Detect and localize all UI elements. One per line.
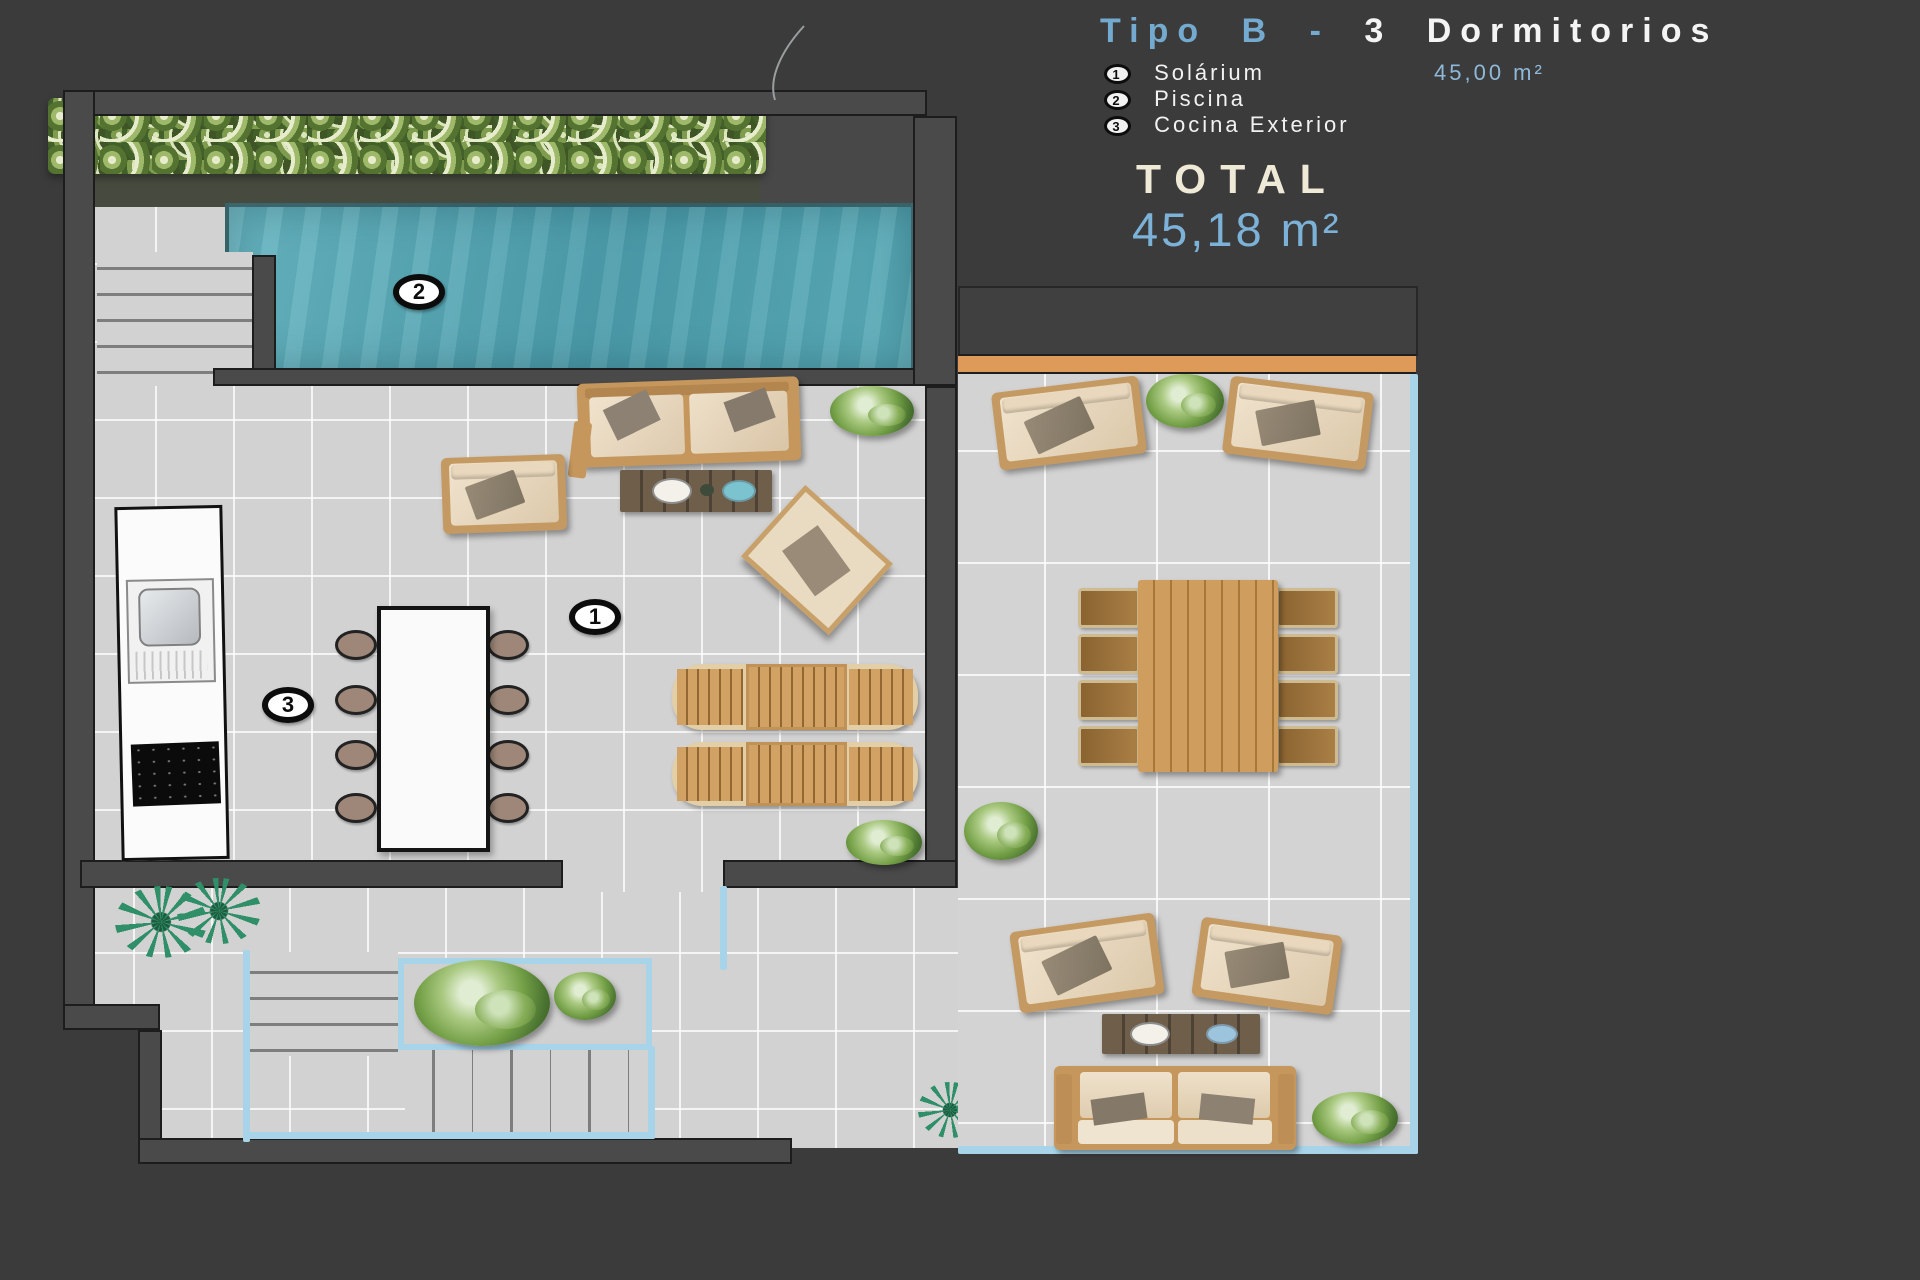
legend-item-cocina: 3 Cocina Exterior: [1104, 112, 1350, 138]
bowl-teal-icon: [722, 480, 756, 502]
wall-bottom-right-segment: [723, 860, 957, 888]
bowl-blue-icon: [1206, 1024, 1238, 1044]
wall-pool-bottom: [213, 368, 927, 386]
wall-right-lower: [925, 386, 957, 888]
dining-chair: [487, 740, 529, 770]
bowl-dark-icon: [700, 484, 714, 496]
palm-leaves: [177, 878, 261, 944]
stair-opening-floor: [563, 858, 723, 892]
bush: [846, 820, 922, 865]
stair-outline-left: [243, 950, 250, 1142]
sketch-artifact: [740, 22, 820, 106]
lounger-slats: [849, 669, 913, 725]
sun-lounger: [672, 742, 918, 806]
wall-jog: [63, 1004, 160, 1030]
plan-badge-solarium: 1: [569, 599, 621, 635]
stair-planter: [398, 958, 652, 1050]
total-label: TOTAL: [1136, 156, 1339, 203]
legend-badge-2: 2: [1104, 90, 1131, 110]
terrace-chair: [1078, 680, 1140, 720]
cooktop-speckles: [131, 741, 221, 806]
lounger-slats: [677, 669, 743, 725]
stairs-top-left: [97, 252, 253, 386]
bowl-white-icon: [1130, 1022, 1170, 1046]
lounger-slats: [746, 742, 847, 806]
stairs-lower-run1: [250, 952, 398, 1056]
planter-bush-large: [414, 960, 550, 1046]
coffee-table: [620, 470, 772, 512]
plan-badge-piscina: 2: [393, 274, 445, 310]
bush: [964, 802, 1038, 860]
terrace-chair: [1276, 588, 1338, 628]
terrace-chair: [1078, 588, 1140, 628]
terrace-dining-table: [1138, 580, 1278, 772]
terrace-chair: [1078, 726, 1140, 766]
terrace-chair: [1276, 634, 1338, 674]
terrace-header-block: [958, 286, 1418, 356]
dining-chair: [335, 630, 377, 660]
wall-bottom-outer: [138, 1138, 792, 1164]
bush: [1146, 374, 1224, 428]
dining-chair: [487, 685, 529, 715]
sofa-seat-cushion: [1078, 1120, 1174, 1144]
legend-badge-1: 1: [1104, 64, 1131, 84]
legend-label: Solárium: [1154, 60, 1265, 85]
sun-lounger: [672, 664, 918, 730]
page-title: Tipo B - 3 Dormitorios: [1100, 12, 1718, 51]
dining-chair: [487, 793, 529, 823]
sofa-arm: [1278, 1074, 1294, 1144]
sink-unit: [126, 578, 216, 684]
badge-number: 2: [413, 279, 425, 305]
total-value: 45,18 m²: [1132, 202, 1341, 257]
dining-chair: [335, 740, 377, 770]
stair-outline-right: [648, 1046, 655, 1139]
terrace-outline-right: [1410, 374, 1418, 1154]
pool: [225, 203, 915, 373]
sofa-top: [577, 376, 802, 468]
dining-chair: [335, 685, 377, 715]
stair-outline-opening: [720, 886, 727, 970]
terrace-chair: [1276, 726, 1338, 766]
legend-label: Piscina: [1154, 86, 1246, 111]
legend-badge-3: 3: [1104, 116, 1131, 136]
terrace-deck-strip: [958, 354, 1416, 374]
legend-label: Cocina Exterior: [1154, 112, 1349, 137]
badge-number: 3: [282, 692, 294, 718]
legend-item-piscina: 2 Piscina: [1104, 86, 1350, 112]
dining-chair: [335, 793, 377, 823]
sofa-seat-cushion: [1178, 1120, 1272, 1144]
wall-right-upper: [913, 116, 957, 386]
legend-value: 45,00 m²: [1434, 60, 1545, 86]
legend: 1 Solárium 45,00 m² 2 Piscina 3 Cocina E…: [1104, 60, 1350, 138]
sink-drainboard: [135, 650, 208, 680]
badge-number: 1: [589, 604, 601, 630]
plan-badge-cocina: 3: [262, 687, 314, 723]
pool-side-wall: [760, 115, 927, 207]
coffee-table: [1102, 1014, 1260, 1054]
sofa-arm: [1056, 1074, 1072, 1144]
terrace-sofa: [1054, 1066, 1296, 1150]
dining-table: [377, 606, 490, 852]
palm-plant: [115, 878, 265, 966]
lounger-slats: [746, 664, 847, 730]
daybed-pillow: [782, 525, 851, 596]
stairs-lower-run2: [405, 1050, 648, 1134]
cooktop: [131, 741, 221, 806]
planter-bush-small: [554, 972, 616, 1020]
lounger-slats: [677, 747, 743, 801]
legend-item-solarium: 1 Solárium 45,00 m²: [1104, 60, 1350, 86]
bush: [1312, 1092, 1398, 1144]
bowl-white-icon: [652, 478, 692, 504]
dining-chair: [487, 630, 529, 660]
kitchen-counter: [114, 505, 229, 861]
terrace-chair: [1276, 680, 1338, 720]
bush: [830, 386, 914, 436]
title-type: Tipo B -: [1100, 12, 1330, 50]
sofa-pillow: [1199, 1093, 1255, 1125]
sink-bowl-icon: [138, 587, 201, 646]
armchair: [441, 454, 568, 534]
terrace-chair: [1078, 634, 1140, 674]
floorplan-canvas: 2 1 3 Tipo B - 3 Dormitorios 1 Solárium …: [0, 0, 1920, 1280]
background-notch: [58, 1028, 140, 1183]
title-bedrooms: 3 Dormitorios: [1364, 12, 1718, 50]
stair-outline-bottom: [243, 1132, 655, 1139]
stair-divider-wall: [252, 255, 276, 386]
lounger-slats: [849, 747, 913, 801]
